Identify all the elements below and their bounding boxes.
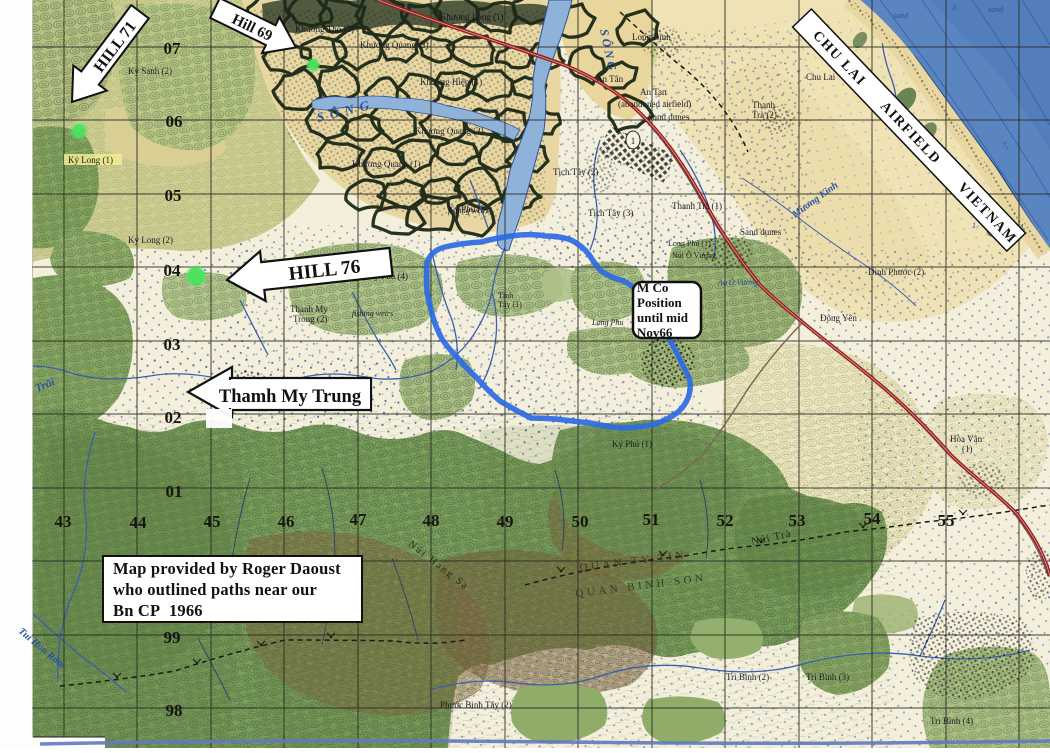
svg-text:Map provided by Roger Daoust: Map provided by Roger Daoust xyxy=(113,559,341,578)
svg-text:03: 03 xyxy=(164,335,181,354)
svg-text:Sand dunes: Sand dunes xyxy=(740,227,782,237)
svg-text:Khương Tho (1): Khương Tho (1) xyxy=(295,24,354,34)
svg-text:3₁: 3₁ xyxy=(951,3,959,12)
svg-text:Tịch Tây (2): Tịch Tây (2) xyxy=(553,167,598,177)
svg-text:05: 05 xyxy=(165,186,182,205)
svg-text:06: 06 xyxy=(166,112,183,131)
svg-text:04: 04 xyxy=(164,261,182,280)
svg-text:Đông Yên: Đông Yên xyxy=(820,313,857,323)
svg-text:Sand dunes: Sand dunes xyxy=(648,112,690,122)
svg-text:Position: Position xyxy=(637,295,683,310)
svg-text:M Co: M Co xyxy=(637,280,668,295)
svg-text:Long Phú (1): Long Phú (1) xyxy=(668,239,711,248)
svg-text:Ký Phú (1): Ký Phú (1) xyxy=(612,439,652,449)
svg-text:Long Bình: Long Bình xyxy=(632,32,671,42)
svg-text:Khương Long (1): Khương Long (1) xyxy=(440,12,504,22)
svg-text:07: 07 xyxy=(164,39,182,58)
svg-text:sand: sand xyxy=(893,11,909,20)
svg-text:54: 54 xyxy=(864,509,882,528)
svg-text:Long Phu: Long Phu xyxy=(591,318,623,327)
svg-text:Tịch Tây (3): Tịch Tây (3) xyxy=(588,208,633,218)
svg-text:Khương Hiệp (1): Khương Hiệp (1) xyxy=(420,77,482,87)
svg-text:Chu Lai: Chu Lai xyxy=(806,72,836,82)
svg-text:49: 49 xyxy=(497,512,514,531)
svg-text:An Tan: An Tan xyxy=(640,87,667,97)
svg-text:fishing weirs: fishing weirs xyxy=(448,206,489,215)
svg-text:Tây (1): Tây (1) xyxy=(498,300,522,309)
svg-text:48: 48 xyxy=(423,511,440,530)
svg-text:50: 50 xyxy=(572,512,589,531)
svg-text:Khương Quang (1): Khương Quang (1) xyxy=(352,159,421,169)
svg-text:An Tân: An Tân xyxy=(596,74,624,84)
svg-text:44: 44 xyxy=(130,513,148,532)
svg-text:1: 1 xyxy=(631,136,636,146)
svg-text:Trì Bình (3): Trì Bình (3) xyxy=(806,672,849,682)
svg-text:98: 98 xyxy=(166,701,183,720)
svg-text:1₇: 1₇ xyxy=(972,221,979,230)
svg-text:Nov66: Nov66 xyxy=(637,325,673,340)
svg-text:46: 46 xyxy=(278,512,295,531)
svg-text:Thanh Trà (1): Thanh Trà (1) xyxy=(672,201,722,211)
svg-text:who outlined paths near our: who outlined paths near our xyxy=(113,580,317,599)
svg-text:51: 51 xyxy=(643,510,660,529)
svg-text:(abandoned airfield): (abandoned airfield) xyxy=(618,99,691,109)
svg-text:Hòa Vân: Hòa Vân xyxy=(950,434,983,444)
svg-text:47: 47 xyxy=(350,510,368,529)
svg-text:52: 52 xyxy=(717,511,734,530)
svg-text:53: 53 xyxy=(789,511,806,530)
svg-text:(1): (1) xyxy=(962,444,973,454)
svg-text:Bn CP 1966: Bn CP 1966 xyxy=(113,601,203,620)
svg-text:Trong (2): Trong (2) xyxy=(293,314,327,324)
svg-text:Ao Ô Vương: Ao Ô Vương xyxy=(717,277,758,287)
svg-text:Trì Bình (4): Trì Bình (4) xyxy=(930,716,973,726)
svg-text:43: 43 xyxy=(55,512,72,531)
svg-text:Thanh My: Thanh My xyxy=(290,304,328,314)
svg-text:Thamh My Trung: Thamh My Trung xyxy=(219,387,362,407)
svg-text:Núi Ô Vương: Núi Ô Vương xyxy=(672,250,716,260)
svg-text:99: 99 xyxy=(164,628,181,647)
svg-text:sand: sand xyxy=(988,5,1004,14)
svg-text:fishing weirs: fishing weirs xyxy=(352,309,393,318)
svg-text:01: 01 xyxy=(166,482,183,501)
svg-text:Khương Quang (2): Khương Quang (2) xyxy=(415,126,484,136)
svg-text:Trì Bình (2): Trì Bình (2) xyxy=(726,672,769,682)
svg-text:Dinh Phước (2): Dinh Phước (2) xyxy=(868,267,924,277)
svg-text:Ký Long (1): Ký Long (1) xyxy=(68,155,113,165)
svg-text:55: 55 xyxy=(938,511,955,530)
svg-text:Ký Sanh (2): Ký Sanh (2) xyxy=(128,66,172,76)
svg-text:Ký Long (2): Ký Long (2) xyxy=(128,235,173,245)
svg-text:7₆: 7₆ xyxy=(1002,141,1009,150)
svg-text:Tịnh: Tịnh xyxy=(498,291,513,300)
svg-text:until mid: until mid xyxy=(637,310,689,325)
svg-text:Trà (2): Trà (2) xyxy=(752,110,777,120)
svg-text:Thanh: Thanh xyxy=(752,100,775,110)
svg-text:45: 45 xyxy=(204,512,221,531)
svg-text:Khương Quang (3): Khương Quang (3) xyxy=(360,40,429,50)
svg-text:02: 02 xyxy=(165,408,182,427)
svg-text:Phước Bình Tây (2): Phước Bình Tây (2) xyxy=(440,700,512,710)
